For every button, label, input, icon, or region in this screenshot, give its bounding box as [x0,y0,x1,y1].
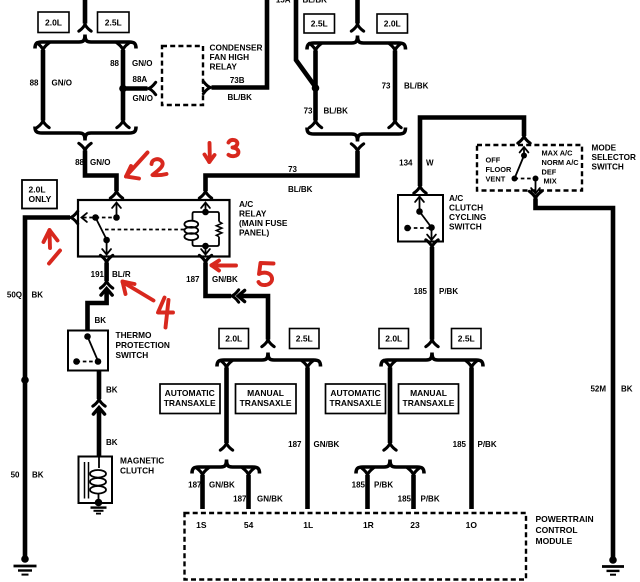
svg-text:MODULE: MODULE [536,536,573,546]
svg-text:TRANSAXLE: TRANSAXLE [164,398,216,408]
svg-text:CLUTCH: CLUTCH [120,466,154,476]
svg-text:W: W [426,159,434,168]
svg-text:50Q: 50Q [7,291,22,300]
svg-text:2.5L: 2.5L [105,17,122,27]
svg-text:134: 134 [399,159,413,168]
svg-text:CONDENSER: CONDENSER [210,43,263,53]
svg-text:P/BK: P/BK [439,287,458,296]
svg-text:MANUAL: MANUAL [247,388,284,398]
svg-text:BK: BK [106,386,118,395]
svg-text:2.0L: 2.0L [385,334,402,344]
svg-text:SWITCH: SWITCH [449,222,482,232]
svg-text:BL/BK: BL/BK [228,93,253,102]
svg-text:TRANSAXLE: TRANSAXLE [240,398,292,408]
svg-text:187: 187 [288,440,302,449]
svg-text:BK: BK [32,471,44,480]
svg-text:73: 73 [382,82,391,91]
svg-text:BL/BK: BL/BK [288,185,313,194]
svg-text:BL/BK: BL/BK [404,82,429,91]
svg-text:2.0L: 2.0L [45,17,62,27]
svg-text:88: 88 [75,158,84,167]
svg-text:CONTROL: CONTROL [536,525,578,535]
svg-text:2.5L: 2.5L [311,19,328,29]
svg-text:SWITCH: SWITCH [592,163,624,172]
svg-text:MIX: MIX [544,177,557,186]
svg-text:185: 185 [398,495,412,504]
svg-text:185: 185 [453,440,467,449]
svg-text:A/C: A/C [449,193,463,203]
svg-text:88A: 88A [133,75,148,84]
svg-text:DEF: DEF [542,168,557,177]
svg-text:185: 185 [352,481,366,490]
svg-text:187: 187 [188,481,202,490]
svg-text:SWITCH: SWITCH [116,350,149,360]
svg-text:50: 50 [11,471,20,480]
svg-text:GN/O: GN/O [52,79,72,88]
svg-text:1L: 1L [303,520,313,530]
svg-text:A/C: A/C [239,199,253,209]
svg-text:15A: 15A [276,0,291,5]
svg-text:BK: BK [32,291,44,300]
svg-text:BL/R: BL/R [112,270,131,279]
svg-text:2.0L: 2.0L [225,334,242,344]
svg-text:1R: 1R [363,520,374,530]
svg-text:54: 54 [244,520,254,530]
svg-text:MODE: MODE [592,144,617,153]
svg-text:191: 191 [91,270,105,279]
svg-text:P/BK: P/BK [374,481,393,490]
svg-text:185: 185 [414,287,428,296]
svg-text:GN/BK: GN/BK [212,275,238,284]
svg-text:73B: 73B [230,76,245,85]
svg-text:23: 23 [410,520,420,530]
svg-text:P/BK: P/BK [421,495,440,504]
svg-text:187: 187 [233,495,247,504]
svg-text:GN/O: GN/O [132,59,152,68]
svg-text:CYCLING: CYCLING [449,212,486,222]
svg-text:VENT: VENT [486,175,506,184]
svg-text:SELECTOR: SELECTOR [592,153,637,162]
svg-text:52M: 52M [590,385,606,394]
svg-text:(MAIN FUSE: (MAIN FUSE [239,218,288,228]
svg-text:2.0L: 2.0L [384,19,401,29]
svg-text:ONLY: ONLY [29,194,52,204]
svg-text:73: 73 [288,165,297,174]
svg-text:GN/BK: GN/BK [209,481,235,490]
svg-text:GN/BK: GN/BK [257,495,283,504]
svg-text:BL/BK: BL/BK [303,0,328,5]
svg-text:AUTOMATIC: AUTOMATIC [330,388,380,398]
svg-text:BK: BK [621,385,633,394]
svg-text:RELAY: RELAY [239,209,267,219]
svg-text:FAN HIGH: FAN HIGH [210,52,250,62]
svg-text:AUTOMATIC: AUTOMATIC [165,388,215,398]
svg-text:POWERTRAIN: POWERTRAIN [536,514,594,524]
svg-text:88: 88 [110,59,119,68]
svg-text:TRANSAXLE: TRANSAXLE [403,398,455,408]
svg-text:OFF: OFF [486,156,501,165]
svg-text:MANUAL: MANUAL [410,388,447,398]
svg-text:NORM A/C: NORM A/C [542,158,580,167]
svg-text:CLUTCH: CLUTCH [449,203,483,213]
svg-text:BK: BK [106,438,118,447]
svg-text:MAX A/C: MAX A/C [542,149,574,158]
svg-text:MAGNETIC: MAGNETIC [120,456,164,466]
svg-text:PROTECTION: PROTECTION [116,340,170,350]
svg-text:FLOOR: FLOOR [486,165,513,174]
svg-text:GN/BK: GN/BK [314,440,340,449]
svg-text:2.5L: 2.5L [296,334,313,344]
svg-text:2.5L: 2.5L [458,334,475,344]
svg-text:RELAY: RELAY [210,62,238,72]
svg-text:BK: BK [95,316,107,325]
svg-text:88: 88 [30,79,39,88]
svg-text:73: 73 [304,107,313,116]
svg-text:THERMO: THERMO [116,330,152,340]
svg-text:P/BK: P/BK [478,440,497,449]
svg-text:2.0L: 2.0L [29,185,46,195]
svg-text:GN/O: GN/O [90,158,110,167]
svg-text:GN/O: GN/O [133,94,153,103]
svg-text:BL/BK: BL/BK [324,107,349,116]
svg-text:1O: 1O [466,520,478,530]
svg-text:TRANSAXLE: TRANSAXLE [330,398,382,408]
svg-text:1S: 1S [196,520,207,530]
svg-text:187: 187 [186,275,200,284]
svg-text:PANEL): PANEL) [239,228,270,238]
